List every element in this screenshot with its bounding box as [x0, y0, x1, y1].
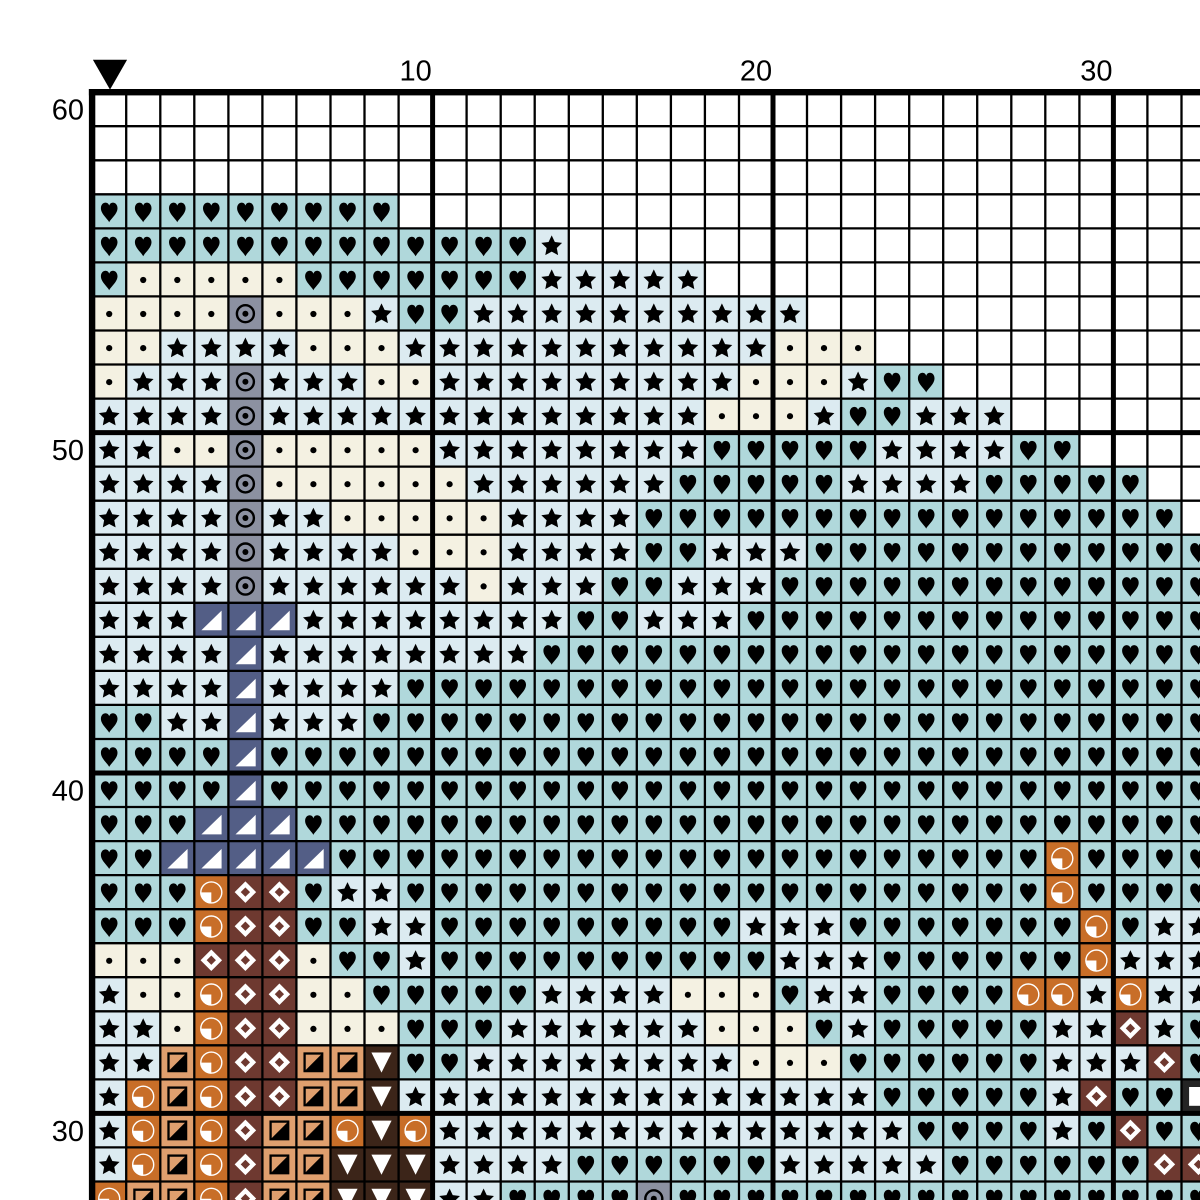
- svg-text:50: 50: [52, 435, 84, 467]
- svg-text:10: 10: [399, 56, 431, 88]
- svg-text:30: 30: [52, 1116, 84, 1148]
- svg-text:30: 30: [1080, 56, 1112, 88]
- svg-text:20: 20: [740, 56, 772, 88]
- svg-text:40: 40: [52, 775, 84, 807]
- svg-text:60: 60: [52, 95, 84, 127]
